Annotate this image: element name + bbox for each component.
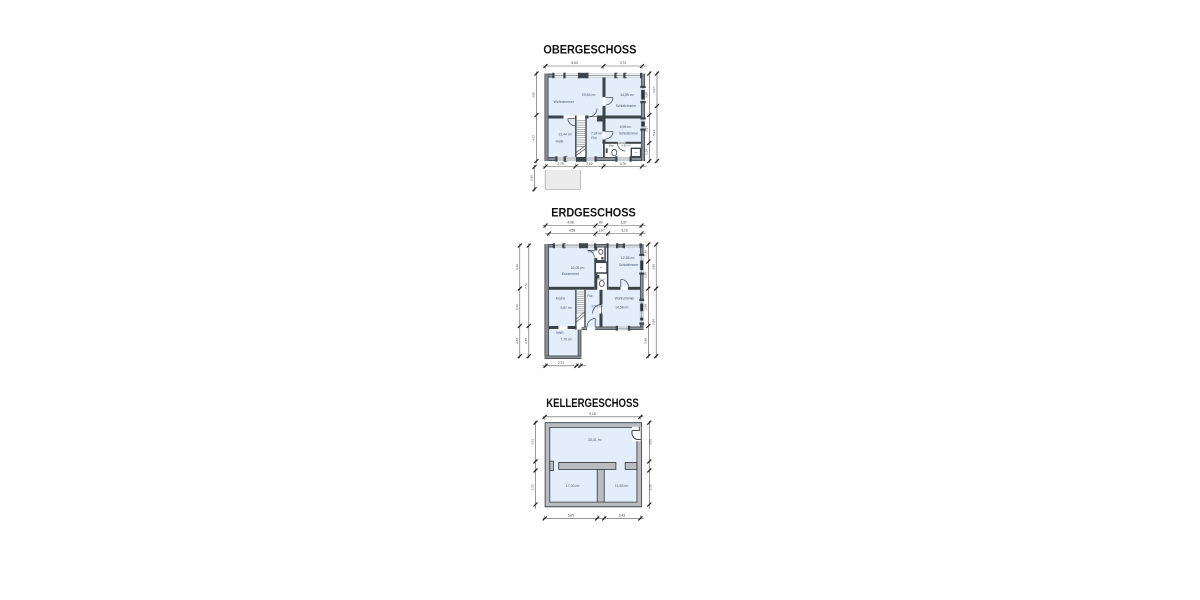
svg-text:3,43: 3,43 (619, 514, 625, 518)
svg-text:3,26: 3,26 (515, 264, 519, 270)
svg-text:3,90: 3,90 (644, 92, 648, 98)
svg-text:3,01: 3,01 (531, 439, 535, 445)
svg-text:HWR: HWR (556, 331, 564, 335)
svg-text:17,00 m²: 17,00 m² (566, 484, 581, 488)
svg-text:3,99: 3,99 (643, 304, 647, 310)
svg-text:Flur: Flur (587, 294, 593, 298)
svg-text:Küche: Küche (556, 297, 566, 301)
svg-text:1,31 m²: 1,31 m² (587, 250, 594, 253)
svg-text:7,34 m²: 7,34 m² (591, 131, 603, 135)
svg-text:2,67: 2,67 (644, 126, 648, 132)
svg-text:29,84 m²: 29,84 m² (582, 93, 597, 97)
svg-text:Flur: Flur (591, 136, 598, 140)
svg-text:2,62: 2,62 (586, 162, 592, 166)
svg-text:Wohnzimmer: Wohnzimmer (554, 100, 575, 104)
svg-text:ERDGESCHOSS: ERDGESCHOSS (551, 206, 636, 220)
svg-text:2,79: 2,79 (557, 162, 563, 166)
svg-text:2,65: 2,65 (524, 338, 528, 344)
svg-text:3,16: 3,16 (621, 229, 627, 233)
svg-text:Esszimmer: Esszimmer (562, 272, 580, 276)
svg-text:Schlafzimmer: Schlafzimmer (619, 263, 639, 267)
svg-text:4,90 m²: 4,90 m² (621, 143, 631, 147)
svg-text:1,07: 1,07 (598, 229, 604, 233)
svg-text:Bad: Bad (609, 143, 614, 147)
svg-text:9,15: 9,15 (589, 412, 595, 416)
svg-text:1,40: 1,40 (643, 250, 647, 256)
svg-text:Wohnzimmer: Wohnzimmer (615, 297, 636, 301)
svg-text:Halle: Halle (556, 139, 564, 143)
svg-text:7,75 m²: 7,75 m² (560, 338, 572, 342)
svg-text:2,84: 2,84 (651, 319, 655, 325)
svg-text:2,60: 2,60 (530, 175, 534, 181)
svg-text:3,19: 3,19 (649, 484, 653, 490)
svg-text:11,53 m²: 11,53 m² (615, 484, 629, 488)
svg-text:5,05: 5,05 (568, 514, 574, 518)
svg-text:Schlafzimmer: Schlafzimmer (616, 104, 637, 108)
svg-text:3,63: 3,63 (515, 304, 519, 310)
svg-text:OBERGESCHOSS: OBERGESCHOSS (543, 43, 636, 57)
svg-text:3,89: 3,89 (651, 264, 655, 270)
svg-text:33,31 m²: 33,31 m² (588, 438, 603, 442)
svg-text:2,50: 2,50 (643, 272, 647, 278)
svg-text:8,95 m²: 8,95 m² (620, 125, 632, 129)
svg-text:2,84: 2,84 (515, 338, 519, 344)
svg-text:4,58: 4,58 (569, 229, 575, 233)
svg-text:14,58 m²: 14,58 m² (615, 306, 629, 310)
svg-text:9,87 m²: 9,87 m² (560, 306, 572, 310)
svg-text:1,34: 1,34 (644, 149, 648, 155)
svg-text:5,24: 5,24 (652, 130, 656, 136)
svg-text:2,89: 2,89 (643, 338, 647, 344)
svg-text:3,73: 3,73 (620, 61, 626, 65)
svg-text:KELLERGESCHOSS: KELLERGESCHOSS (546, 396, 639, 410)
svg-text:7,94 m²: 7,94 m² (591, 304, 603, 308)
svg-text:4,98: 4,98 (567, 221, 573, 225)
svg-text:3,65: 3,65 (532, 92, 536, 98)
svg-text:2,71: 2,71 (558, 361, 564, 365)
svg-text:1,63 m²: 1,63 m² (597, 278, 604, 281)
svg-text:4,17: 4,17 (532, 135, 536, 141)
svg-text:3,37: 3,37 (620, 221, 626, 225)
svg-text:7,72: 7,72 (524, 283, 528, 289)
svg-text:3,01: 3,01 (649, 439, 653, 445)
svg-text:3,19: 3,19 (531, 484, 535, 490)
svg-text:12,56 m²: 12,56 m² (621, 256, 636, 260)
svg-text:16,05 m²: 16,05 m² (571, 266, 586, 270)
svg-text:90: 90 (599, 221, 603, 225)
svg-text:13,44 m²: 13,44 m² (558, 132, 573, 136)
svg-text:14,55 m²: 14,55 m² (620, 93, 635, 97)
svg-text:3,76: 3,76 (620, 162, 626, 166)
svg-text:5,53: 5,53 (571, 61, 577, 65)
svg-text:3,07: 3,07 (652, 87, 656, 93)
svg-text:Schlafzimmer: Schlafzimmer (619, 131, 639, 135)
